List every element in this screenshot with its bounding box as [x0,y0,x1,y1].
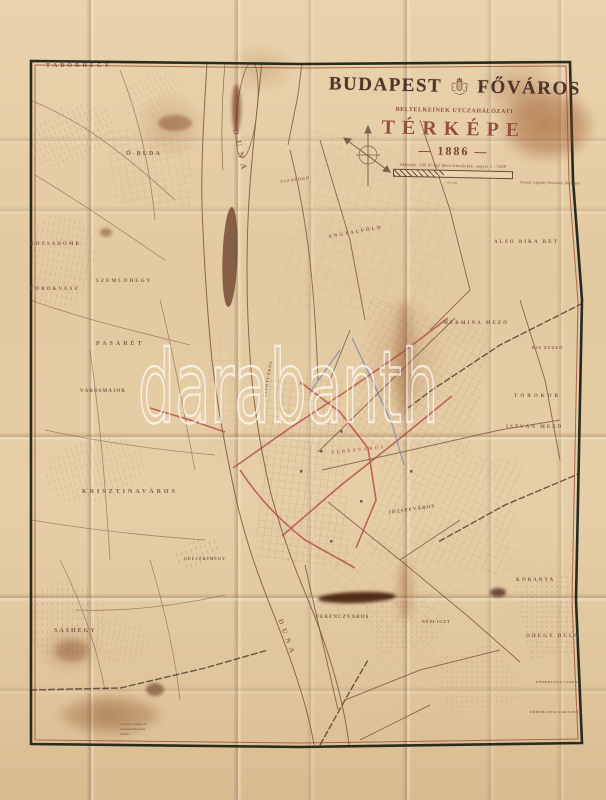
map-title-terkepe: TÉRKÉPE [328,115,580,143]
stain [398,560,412,620]
map-title-budapest: BUDAPEST [329,73,443,97]
margaret-island [221,207,239,307]
map-sheet: BUDAPEST FŐVÁROS BELTELKEINEK UTCZAHÁLÓZ… [0,0,606,800]
map-title-row: BUDAPEST FŐVÁROS [328,65,581,108]
stain [146,683,164,696]
stain [490,588,506,597]
printer-imprint: Nyomt. Légrády Testvérek, Budapest [520,179,580,185]
legend-block: A veres vonalak azutczaszabályozástjelöl… [120,722,190,737]
scale-bar-hatch [394,170,444,177]
legend-line: jelölik. [120,732,190,737]
title-cartouche: BUDAPEST FŐVÁROS BELTELKEINEK UTCZAHÁLÓZ… [327,65,581,187]
stain [396,300,412,420]
stain [232,84,241,132]
stain [158,115,192,131]
scale-bar [393,169,513,180]
stain [100,228,112,237]
photo-of-folded-map: BUDAPEST FŐVÁROS BELTELKEINEK UTCZAHÁLÓZ… [0,0,606,800]
coat-of-arms-icon [447,68,473,107]
stain [55,640,89,662]
street-grid-texture [100,105,602,773]
map-year: — 1886 — [327,141,579,161]
map-title-fovaros: FŐVÁROS [477,76,581,100]
